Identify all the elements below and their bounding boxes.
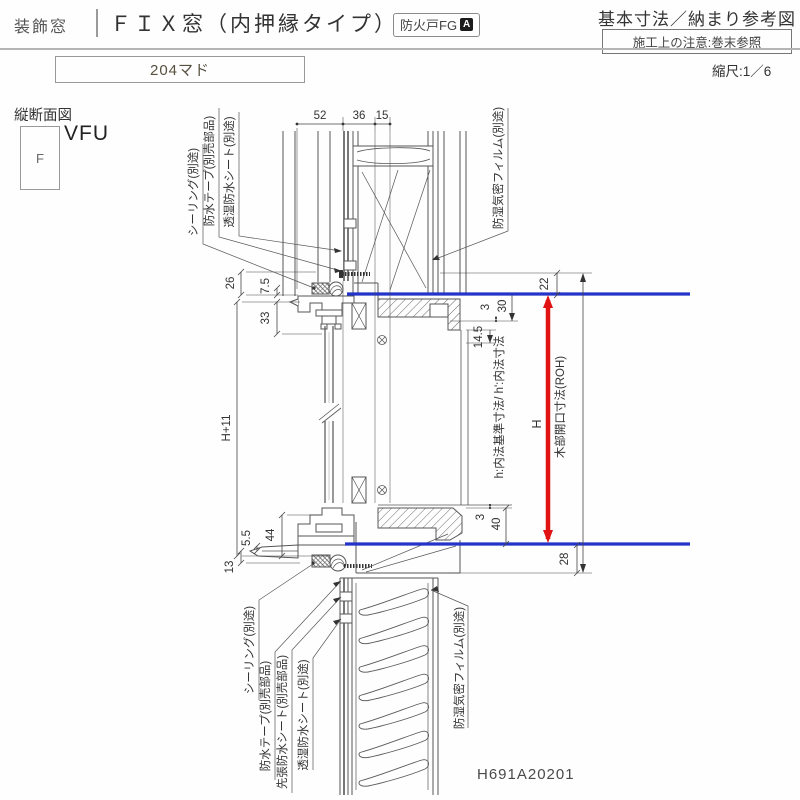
annotation-labels: シーリング(別途) 防水テープ(別売部品) 透湿防水シート(別途) 防湿気密フィ… [186,107,505,789]
label-waterproof-tape-top: 防水テープ(別売部品) [202,116,216,227]
inner-dimension-label: h:内法基準寸法/ h':内法寸法 [492,336,506,479]
dim-28: 28 [559,553,571,566]
glass-pane [317,326,387,503]
dim-7-5: 7.5 [260,278,272,294]
dim-44: 44 [265,528,277,541]
dim-26: 26 [225,277,237,290]
dim-40: 40 [491,518,503,531]
insulation-coils [359,589,429,787]
inner-reference-lines [345,294,690,544]
dimension-lines [234,117,592,576]
label-vapor-film-top: 防湿気密フィルム(別途) [491,107,505,229]
dim-h-plus-11: H+11 [221,415,233,442]
dim-33: 33 [260,312,272,325]
label-presheet-bottom: 先張防水シート(別売部品) [275,655,289,789]
section-drawing: H [0,0,800,800]
opening-height-dimension: H [530,295,553,543]
screw-mark-lower [378,486,387,495]
dim-15: 15 [376,110,389,122]
dim-14-5: 14.5 [473,326,485,348]
label-vapor-film-bottom: 防湿気密フィルム(別途) [452,607,466,729]
screw-mark-upper [378,336,387,345]
dim-13: 13 [224,561,236,574]
label-breathable-sheet-top: 透湿防水シート(別途) [222,116,236,227]
dim-5-5: 5.5 [241,530,253,546]
label-waterproof-tape-bottom: 防水テープ(別売部品) [258,661,272,772]
dim-3-sill: 3 [475,514,487,520]
dim-36: 36 [353,110,366,122]
rough-opening-label: 木部開口寸法(ROH) [553,356,567,458]
dim-30: 30 [497,300,509,313]
label-sealing-bottom: シーリング(別途) [242,606,256,694]
label-sealing-top: シーリング(別途) [186,148,200,236]
dim-3-head: 3 [480,304,492,310]
catalog-page: 装飾窓 ＦＩＸ窓（内押縁タイプ） 防火戸FG A 基本寸法／納まり参考図 施工上… [0,0,800,800]
dim-H: H [530,419,544,428]
dim-22: 22 [539,278,551,291]
label-breathable-sheet-bottom: 透湿防水シート(別途) [296,659,310,770]
head-frame [290,270,468,505]
lower-wall-section [340,578,438,795]
dim-52: 52 [314,110,327,122]
upper-wall-section [283,131,466,296]
dimension-labels: 52 36 15 26 7.5 33 H+11 44 5.5 13 3 30 1… [221,110,571,573]
